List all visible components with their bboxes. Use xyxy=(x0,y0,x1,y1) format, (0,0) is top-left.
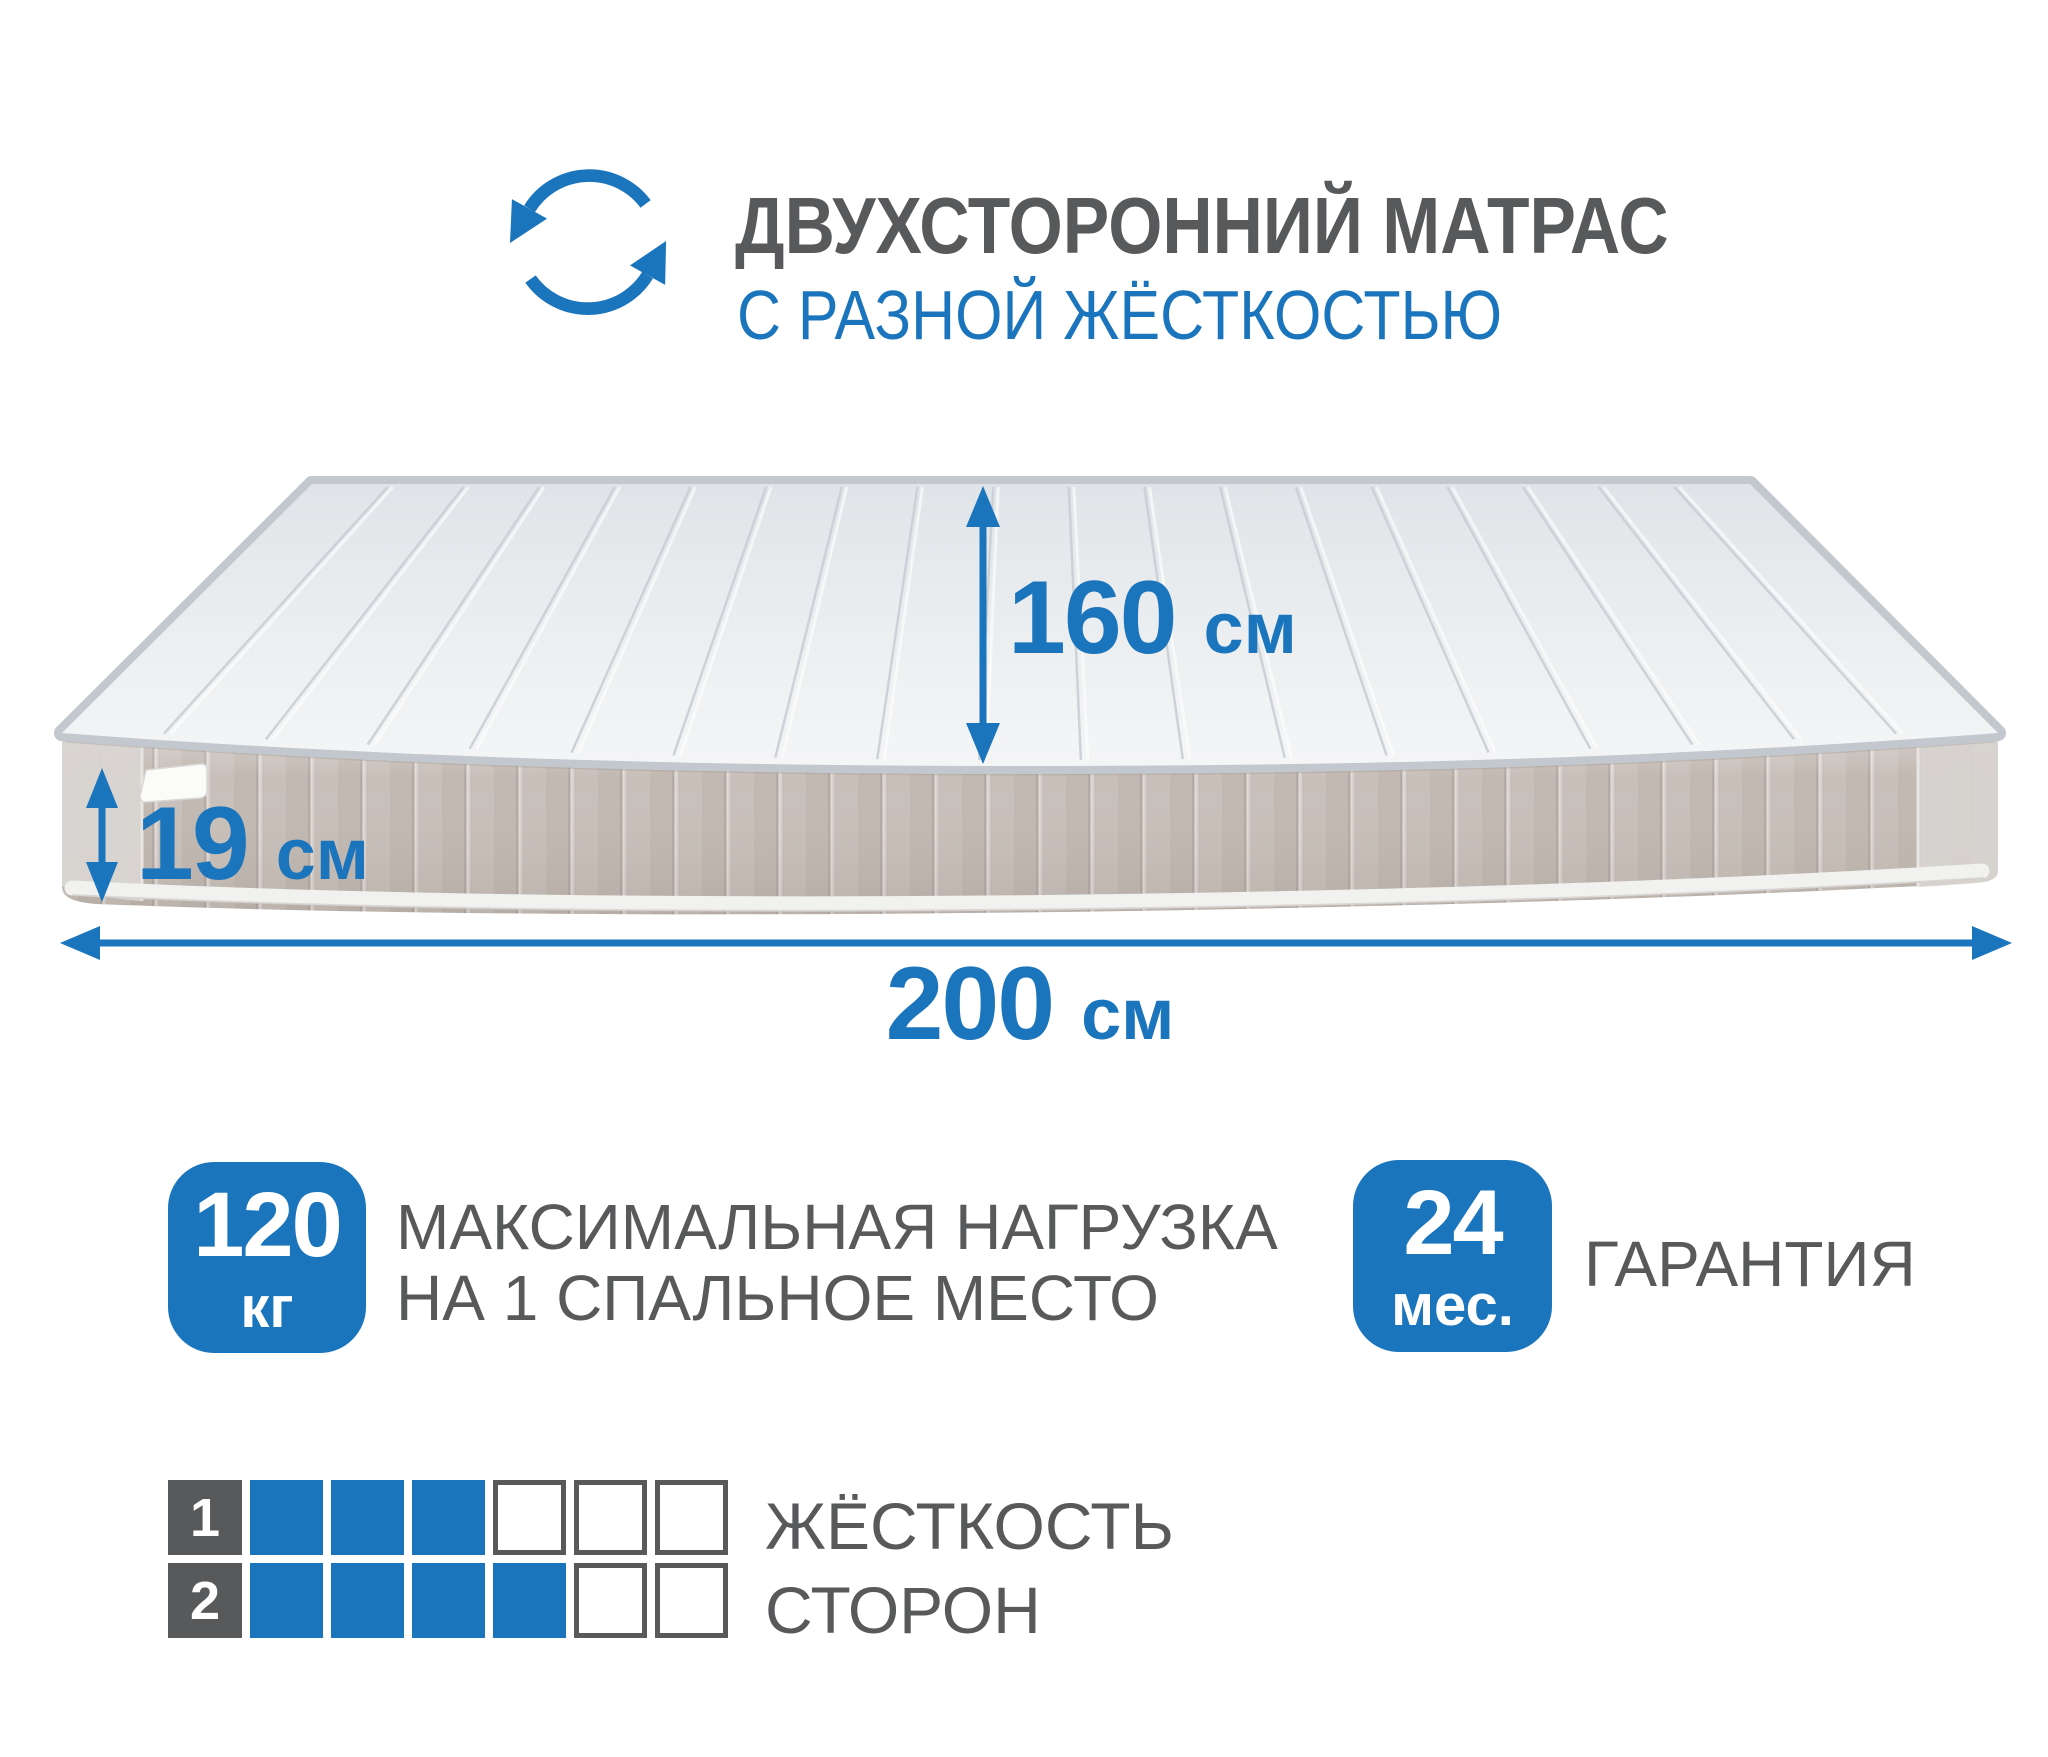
firmness-cell-empty xyxy=(493,1480,566,1555)
length-value: 200 xyxy=(886,952,1054,1056)
max-load-value: 120 xyxy=(193,1179,341,1271)
firmness-cell-filled xyxy=(412,1480,485,1555)
max-load-caption: МАКСИМАЛЬНАЯ НАГРУЗКА НА 1 СПАЛЬНОЕ МЕСТ… xyxy=(396,1192,1278,1334)
height-value: 19 xyxy=(136,792,248,896)
max-load-badge: 120 кг xyxy=(168,1162,366,1353)
firmness-caption-line2: СТОРОН xyxy=(765,1568,1174,1652)
width-unit: см xyxy=(1204,593,1297,665)
mattress-infographic: ДВУХСТОРОННИЙ МАТРАС С РАЗНОЙ ЖЁСТКОСТЬЮ xyxy=(0,0,2048,1757)
firmness-cell-filled xyxy=(331,1480,404,1555)
firmness-cell-filled xyxy=(331,1563,404,1638)
firmness-cell-empty xyxy=(574,1563,647,1638)
height-dimension-label: 19 см xyxy=(136,792,369,896)
firmness-cell-filled xyxy=(493,1563,566,1638)
width-dimension-label: 160 см xyxy=(1008,566,1297,670)
mattress-illustration xyxy=(0,430,2048,990)
warranty-badge: 24 мес. xyxy=(1353,1160,1552,1352)
warranty-value: 24 xyxy=(1403,1177,1501,1269)
firmness-row-label: 2 xyxy=(168,1563,242,1638)
firmness-caption: ЖЁСТКОСТЬ СТОРОН xyxy=(765,1484,1174,1652)
rotate-arrows-icon xyxy=(510,163,670,321)
firmness-cell-filled xyxy=(250,1480,323,1555)
height-unit: см xyxy=(276,819,369,891)
max-load-caption-line1: МАКСИМАЛЬНАЯ НАГРУЗКА xyxy=(396,1192,1278,1263)
max-load-caption-line2: НА 1 СПАЛЬНОЕ МЕСТО xyxy=(396,1263,1278,1334)
firmness-cell-empty xyxy=(655,1563,728,1638)
page-title: ДВУХСТОРОННИЙ МАТРАС xyxy=(735,186,1669,266)
warranty-caption: ГАРАНТИЯ xyxy=(1584,1232,1916,1296)
length-unit: см xyxy=(1081,979,1174,1051)
firmness-row-1: 1 xyxy=(168,1480,736,1555)
width-value: 160 xyxy=(1008,566,1176,670)
max-load-unit: кг xyxy=(240,1279,293,1337)
firmness-row-label: 1 xyxy=(168,1480,242,1555)
firmness-row-2: 2 xyxy=(168,1563,736,1638)
warranty-unit: мес. xyxy=(1391,1277,1514,1335)
firmness-cell-filled xyxy=(250,1563,323,1638)
mattress-corner-right xyxy=(1918,733,1998,887)
firmness-cell-empty xyxy=(574,1480,647,1555)
page-subtitle: С РАЗНОЙ ЖЁСТКОСТЬЮ xyxy=(737,280,1502,350)
firmness-cell-filled xyxy=(412,1563,485,1638)
firmness-cell-empty xyxy=(655,1480,728,1555)
length-dimension-label: 200 см xyxy=(886,952,1175,1056)
firmness-caption-line1: ЖЁСТКОСТЬ xyxy=(765,1484,1174,1568)
firmness-scale: 12 xyxy=(168,1480,736,1646)
